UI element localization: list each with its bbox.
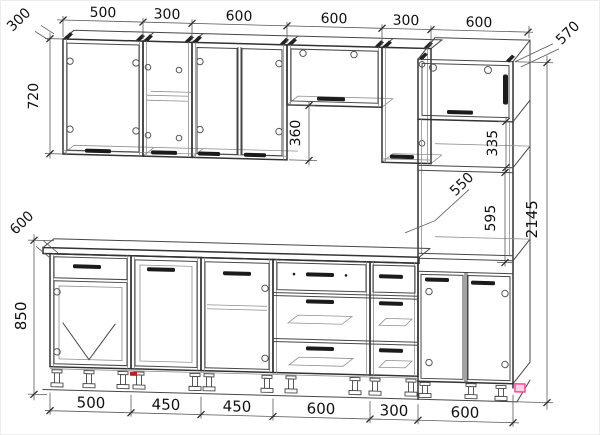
dim-base-depth-label: 600 [7, 208, 37, 238]
dim-bottom-4: 600 [307, 399, 336, 418]
hinge-icon [133, 128, 139, 135]
door-handle [447, 110, 473, 115]
dim-upper-height-label: 720 [26, 83, 42, 110]
dim-tall-depth-label: 570 [553, 18, 583, 48]
drawer-handle [306, 346, 334, 351]
hinge-icon [300, 50, 306, 57]
hinge-icon [262, 285, 268, 292]
shelf-pin-icon [145, 132, 151, 138]
upper-cabinet-500 [63, 39, 143, 156]
shelf-pin-icon [176, 67, 182, 73]
tall-cabinet-base-doors [418, 271, 513, 383]
upper-cabinet-600-two-door [192, 42, 287, 159]
dim-total-height-label: 2145 [523, 200, 541, 239]
drawer-handle [73, 264, 101, 269]
dim-upper-depth: 300 [4, 5, 54, 40]
dim-bottom-6: 600 [451, 403, 480, 422]
drawer-handle [379, 274, 403, 279]
door-handle [390, 155, 414, 160]
drawer-handle [306, 272, 334, 277]
base-drawer-unit-300 [370, 262, 418, 376]
dim-niche-550: 550 [405, 168, 477, 235]
hinge-icon [485, 66, 492, 73]
dim-top-2: 300 [154, 6, 181, 23]
hinge-icon [197, 58, 203, 65]
red-marker [130, 372, 137, 376]
dim-bottom-5: 300 [380, 401, 409, 420]
dim-niche-595: 595 [483, 167, 513, 267]
dim-top-chain: 500 300 600 600 300 600 [57, 4, 533, 49]
dim-base-depth: 600 [7, 208, 58, 259]
dim-niche-550-label: 550 [447, 170, 477, 200]
dim-niche-595-label: 595 [483, 205, 499, 232]
handle-screw [293, 273, 296, 276]
door-handle [471, 281, 495, 286]
door-handle [244, 153, 266, 158]
dim-niche-335: 335 [485, 116, 513, 173]
shelf-pin-icon [176, 135, 182, 141]
base-cabinets [50, 254, 418, 377]
dim-top-3: 600 [226, 8, 253, 25]
door-handle [147, 267, 175, 272]
dim-bottom-1: 500 [77, 393, 106, 412]
dim-bottom-2: 450 [152, 395, 181, 414]
hinge-icon [502, 290, 508, 297]
door-handle [85, 149, 111, 154]
shelf-pin-icon [419, 140, 425, 146]
door-handle [198, 152, 220, 157]
hinge-icon [426, 288, 432, 295]
shelf-pin-icon [145, 64, 151, 70]
door-handle [151, 150, 177, 155]
dim-gap-label: 360 [288, 119, 304, 146]
drawer-handle [306, 299, 334, 304]
base-cabinet-500 [50, 254, 131, 369]
handle-screw [345, 274, 348, 277]
hinge-icon [502, 361, 508, 368]
hinge-icon [67, 126, 73, 133]
tall-cabinet [418, 37, 530, 402]
dim-top-5: 300 [393, 13, 420, 30]
dim-base-height-label: 850 [12, 301, 30, 330]
dim-total-height: 2145 [515, 55, 553, 410]
base-cabinet-450-left [131, 256, 201, 371]
door-handle [425, 277, 449, 282]
dim-top-1: 500 [90, 5, 117, 22]
dim-bottom-3: 450 [223, 397, 252, 416]
dim-top-6: 600 [466, 14, 493, 31]
hinge-icon [351, 51, 357, 58]
kitchen-cabinet-drawing: 500 300 600 600 300 600 500 450 450 600 … [1, 1, 600, 435]
hinge-icon [133, 60, 139, 67]
dim-upper-depth-label: 300 [4, 5, 34, 35]
door-handle-vertical [503, 74, 508, 104]
pink-marker [515, 384, 525, 392]
door-handle [317, 97, 345, 102]
dim-gap-360: 360 [287, 101, 317, 166]
hinge-icon [426, 359, 432, 366]
hinge-icon [276, 128, 282, 135]
dim-niche-335-label: 335 [485, 130, 501, 157]
upper-cabinets [63, 30, 442, 164]
base-cabinet-450-right [201, 258, 273, 373]
dim-bottom-chain: 500 450 450 600 300 600 [45, 383, 519, 427]
dim-top-4: 600 [321, 11, 348, 28]
kitchen-drawing-page: 500 300 600 600 300 600 500 450 450 600 … [0, 0, 600, 435]
tall-cabinet-top-door [418, 63, 513, 121]
hinge-icon [262, 355, 268, 362]
upper-shelf-unit-300-right [382, 47, 431, 163]
worktop [43, 238, 430, 263]
upper-shelf-unit-300 [143, 41, 192, 157]
drawer-handle [379, 348, 403, 353]
base-drawer-unit-600 [273, 259, 370, 375]
hinge-icon [276, 60, 282, 67]
door-handle [223, 271, 251, 276]
hinge-icon [67, 58, 73, 65]
hinge-icon [197, 126, 203, 133]
dim-upper-height: 720 [26, 32, 63, 159]
drawer-handle [379, 301, 403, 306]
dim-base-height: 850 [12, 234, 54, 401]
